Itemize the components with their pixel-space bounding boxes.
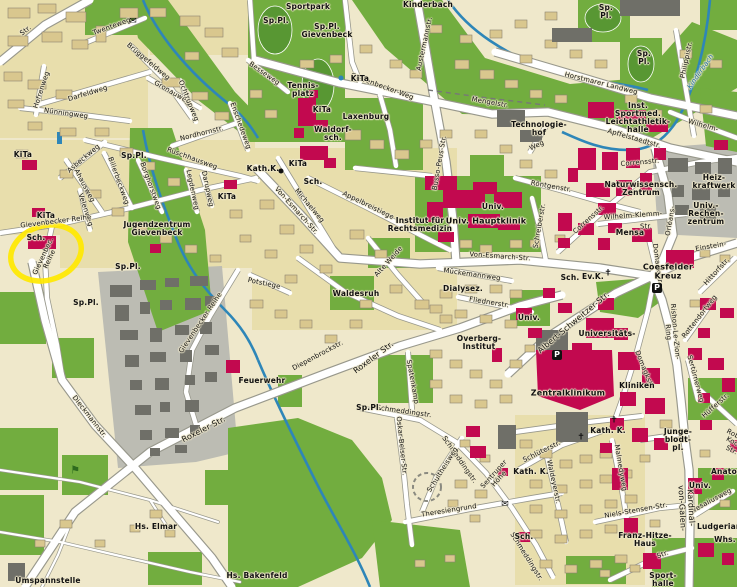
map-canvas xyxy=(0,0,737,587)
city-map[interactable]: Str.TwentewegDarfeldwegNünningwegHofrenw… xyxy=(0,0,737,587)
